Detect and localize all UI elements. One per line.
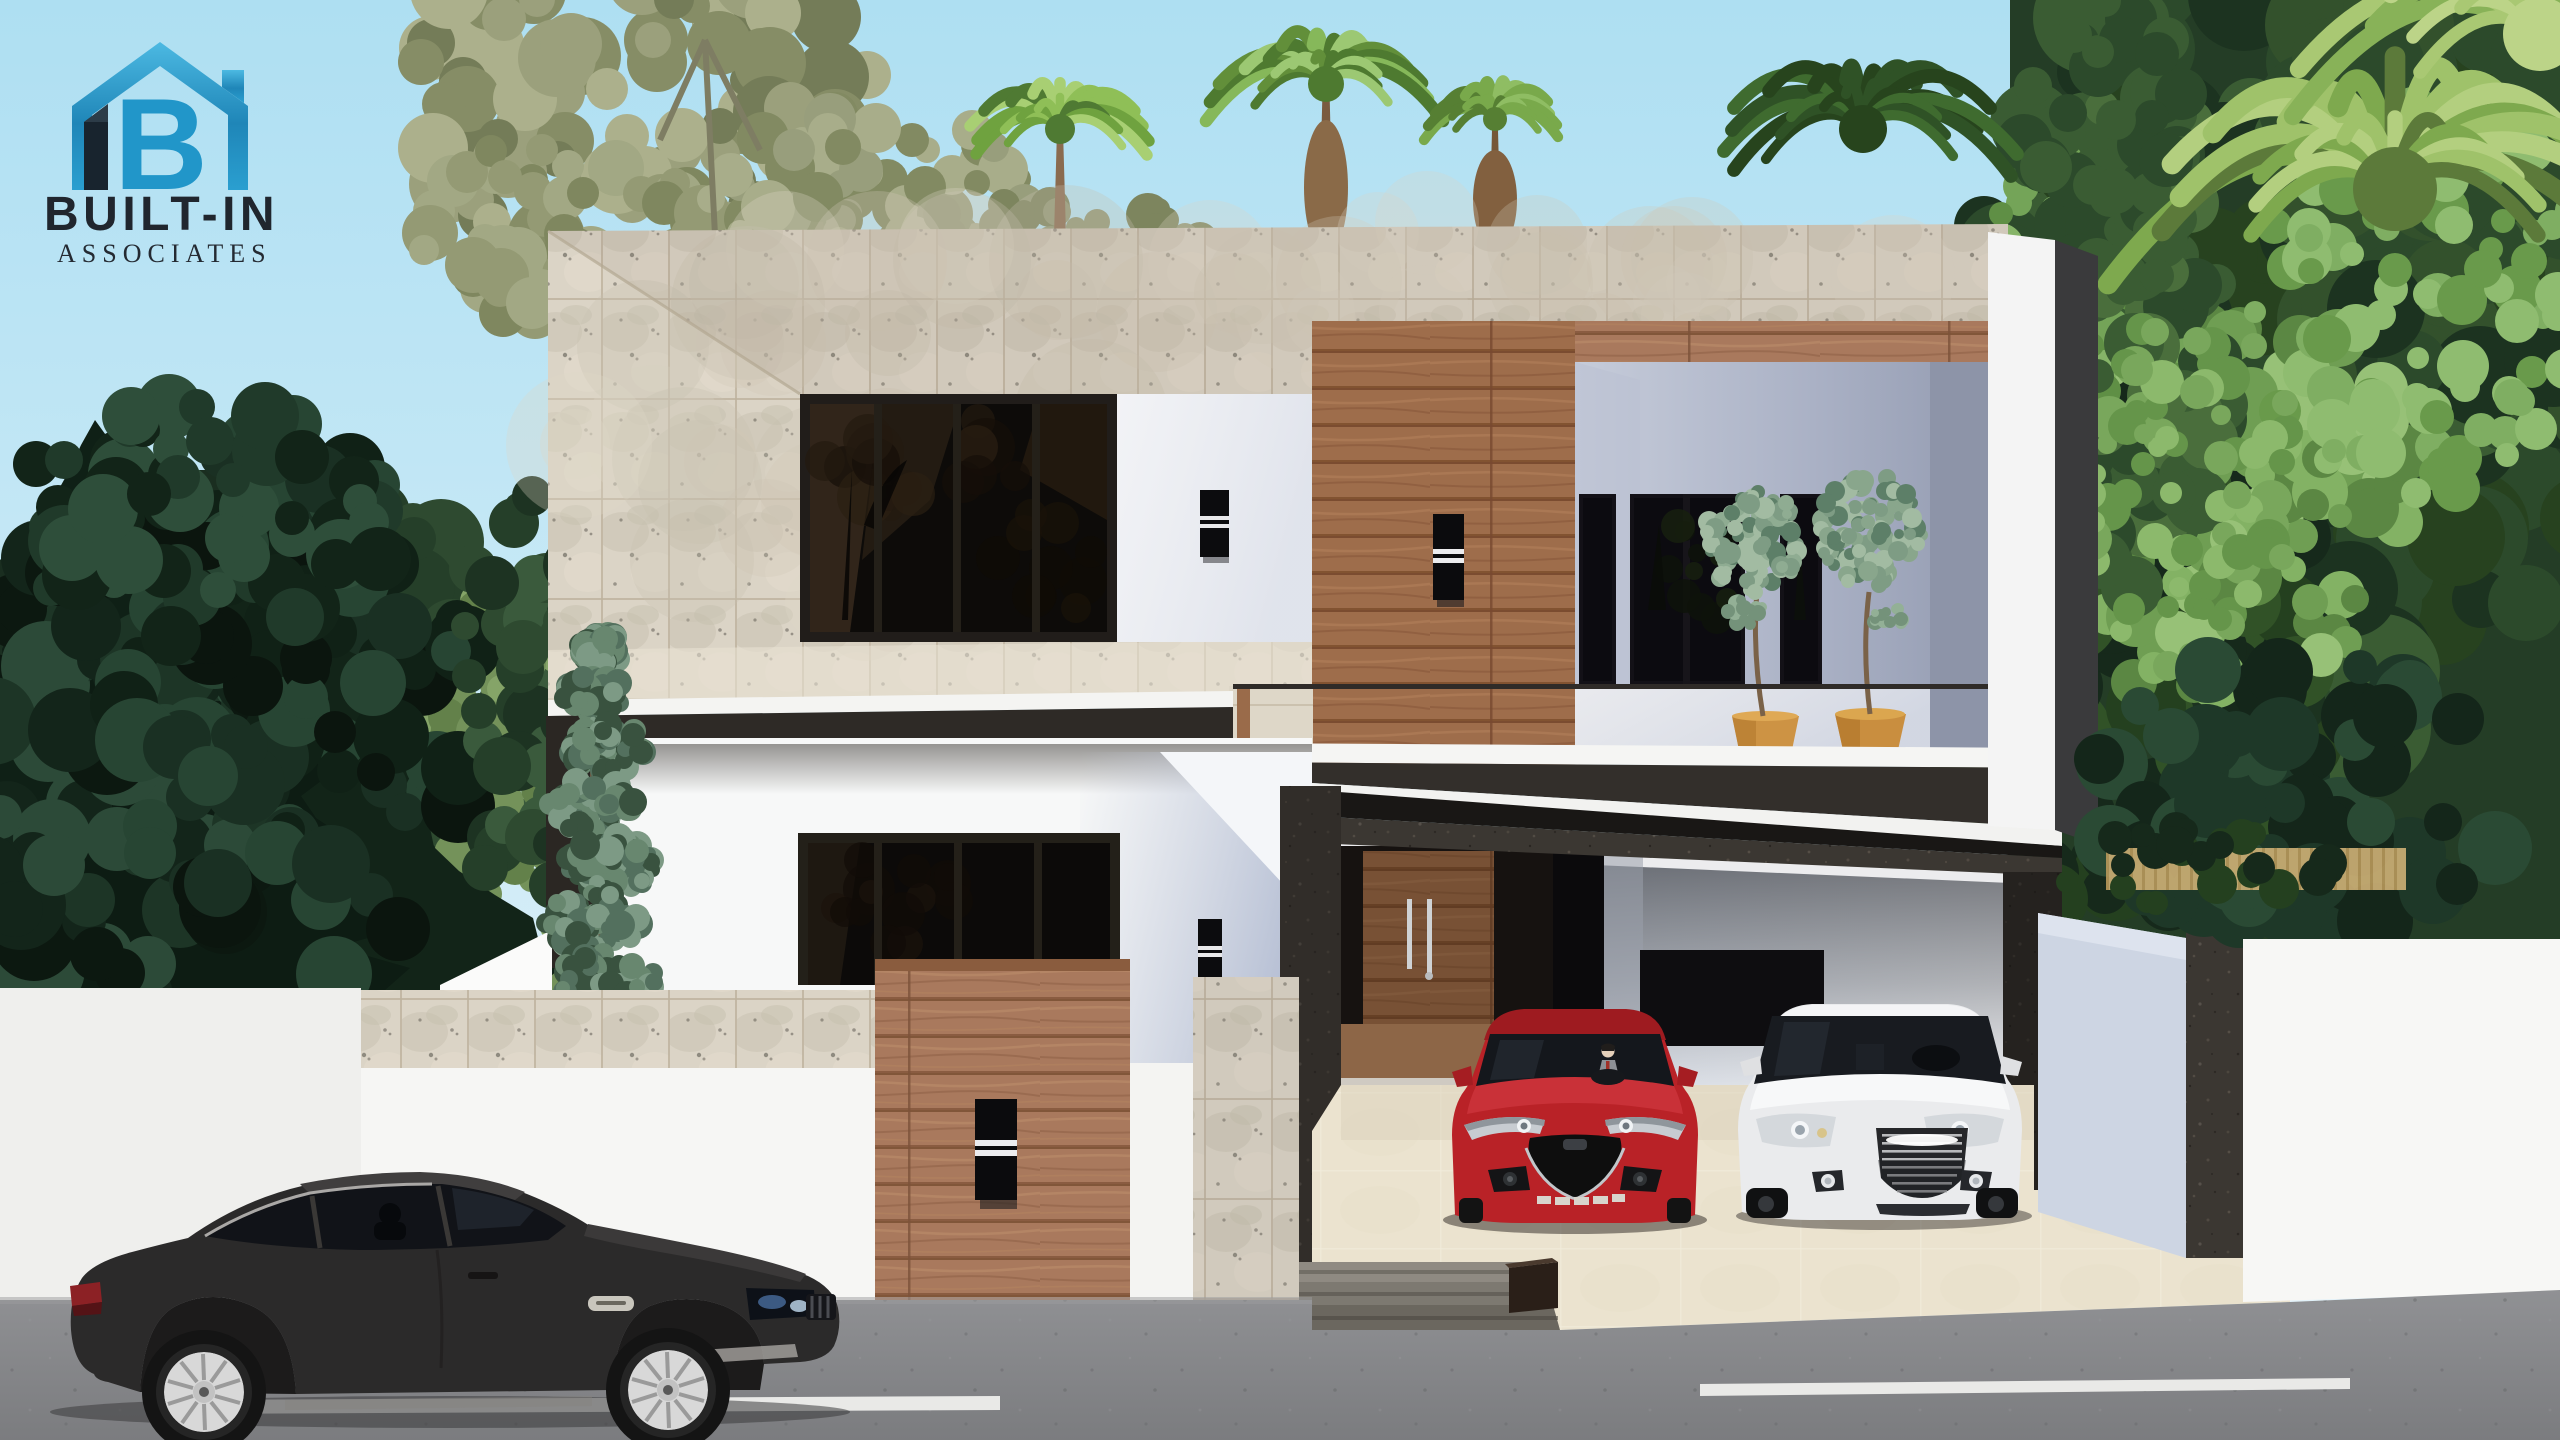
svg-text:BUILT-IN: BUILT-IN [44, 188, 279, 241]
svg-text:ASSOCIATES: ASSOCIATES [57, 239, 272, 268]
